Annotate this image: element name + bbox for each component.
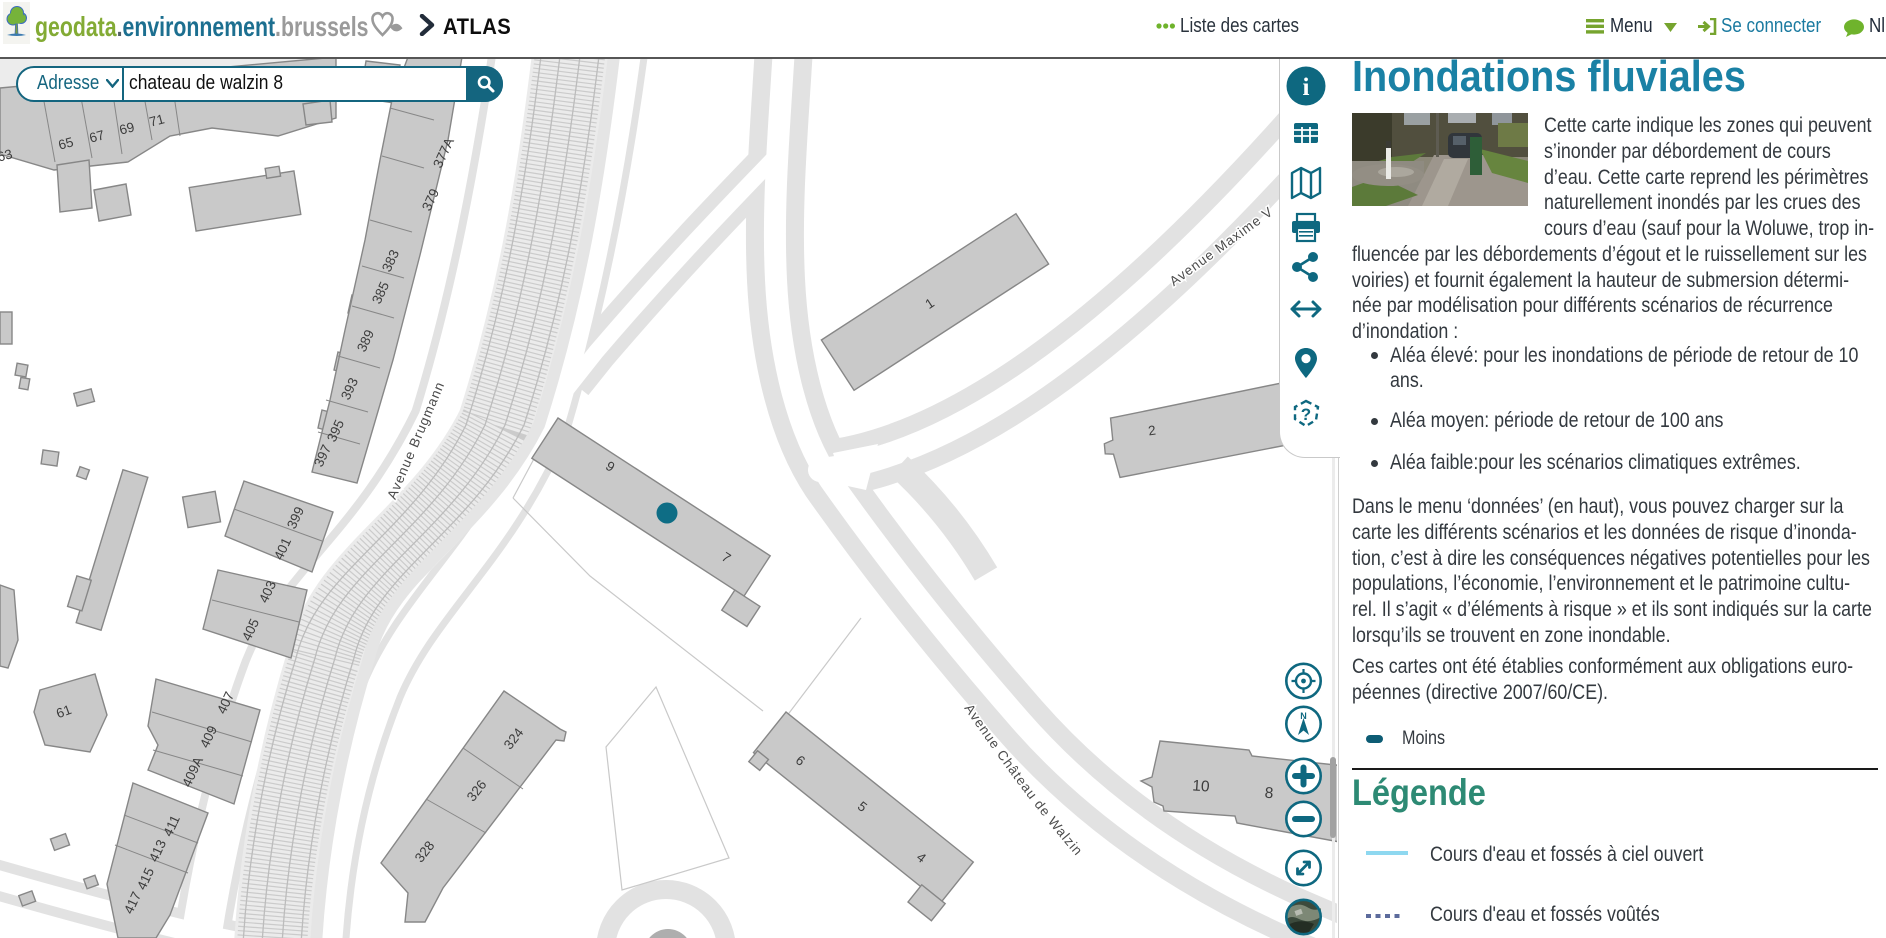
svg-text:10: 10 (1192, 777, 1211, 795)
svg-text:?: ? (1301, 405, 1311, 424)
svg-text:i: i (1303, 74, 1310, 101)
svg-text:8: 8 (1264, 785, 1274, 803)
